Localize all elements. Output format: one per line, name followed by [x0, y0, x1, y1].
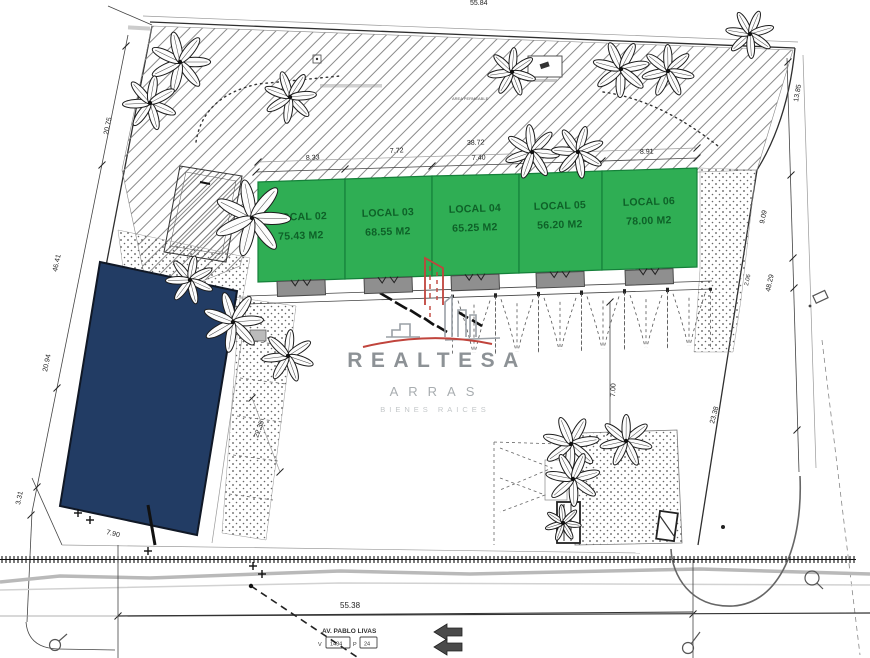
flag-marker-circle [683, 643, 694, 654]
watermark-tagline: BIENES RAICES [380, 405, 490, 414]
dim-right-2: 2.06 [744, 273, 752, 286]
dim-right-1: 9.09 [759, 210, 769, 225]
street-v-value: 1434 [330, 642, 342, 648]
local-04-name: LOCAL 04 [449, 202, 502, 216]
dim-top-0: 8.33 [306, 154, 320, 162]
watermark-division: ARRAS [390, 384, 485, 399]
street-p-value: 24 [364, 642, 370, 648]
local-06-area: 78.00 M2 [626, 214, 672, 228]
dim-drive: 7.00 [610, 383, 617, 397]
traffic-arrows [434, 624, 462, 655]
street-p-label: P [353, 642, 357, 648]
entry-pad [625, 269, 673, 286]
dim-top-3: 7.40 [472, 155, 486, 162]
dim-top-4: 8.91 [640, 149, 654, 156]
dim-bottom-edge: 7.90 [106, 529, 121, 539]
dim-top-1: 7.72 [390, 147, 404, 155]
dim-top-2: 38.72 [467, 139, 485, 147]
entry-pad [536, 271, 584, 288]
reserved-block [60, 262, 237, 535]
entry-pad [277, 280, 325, 297]
dim-right-0: 13.85 [793, 84, 803, 103]
site-plan-svg: AREA PERMEABLE [0, 0, 870, 658]
illegible-text-mark [320, 84, 382, 88]
dim-left-0: 20.75 [103, 117, 114, 136]
area-permeable-label: AREA PERMEABLE [452, 96, 489, 101]
watermark-brand: REALTESA [347, 349, 527, 372]
local-03-area: 68.55 M2 [365, 225, 411, 239]
dim-frontage: 55.38 [340, 601, 361, 610]
illegible-text-mark [128, 25, 150, 30]
local-03-name: LOCAL 03 [362, 206, 415, 220]
street-name-label: AV. PABLO LIVAS [322, 628, 377, 635]
utility-pole-symbol [813, 290, 828, 303]
dim-right-3: 48.29 [765, 274, 776, 293]
local-05-area: 56.20 M2 [537, 218, 583, 232]
site-plan-image: AREA PERMEABLE [0, 0, 870, 658]
local-04-area: 65.25 M2 [452, 221, 498, 235]
street-v-label: V [318, 642, 322, 648]
dim-top-edge: 55.84 [470, 0, 488, 7]
local-06-name: LOCAL 06 [623, 195, 676, 209]
dim-left-3: 3.31 [15, 491, 25, 506]
dim-left-2: 20.94 [42, 354, 53, 373]
entry-pad [364, 277, 412, 294]
herringbone-stalls [451, 288, 712, 357]
dim-left-1: 46.41 [52, 254, 63, 273]
local-02-area: 75.43 M2 [278, 229, 324, 243]
curb-contour [0, 569, 870, 582]
driveway-return-curve [671, 476, 800, 606]
corner-curb [26, 622, 115, 650]
entry-pad [451, 274, 499, 291]
local-05-name: LOCAL 05 [534, 199, 587, 213]
